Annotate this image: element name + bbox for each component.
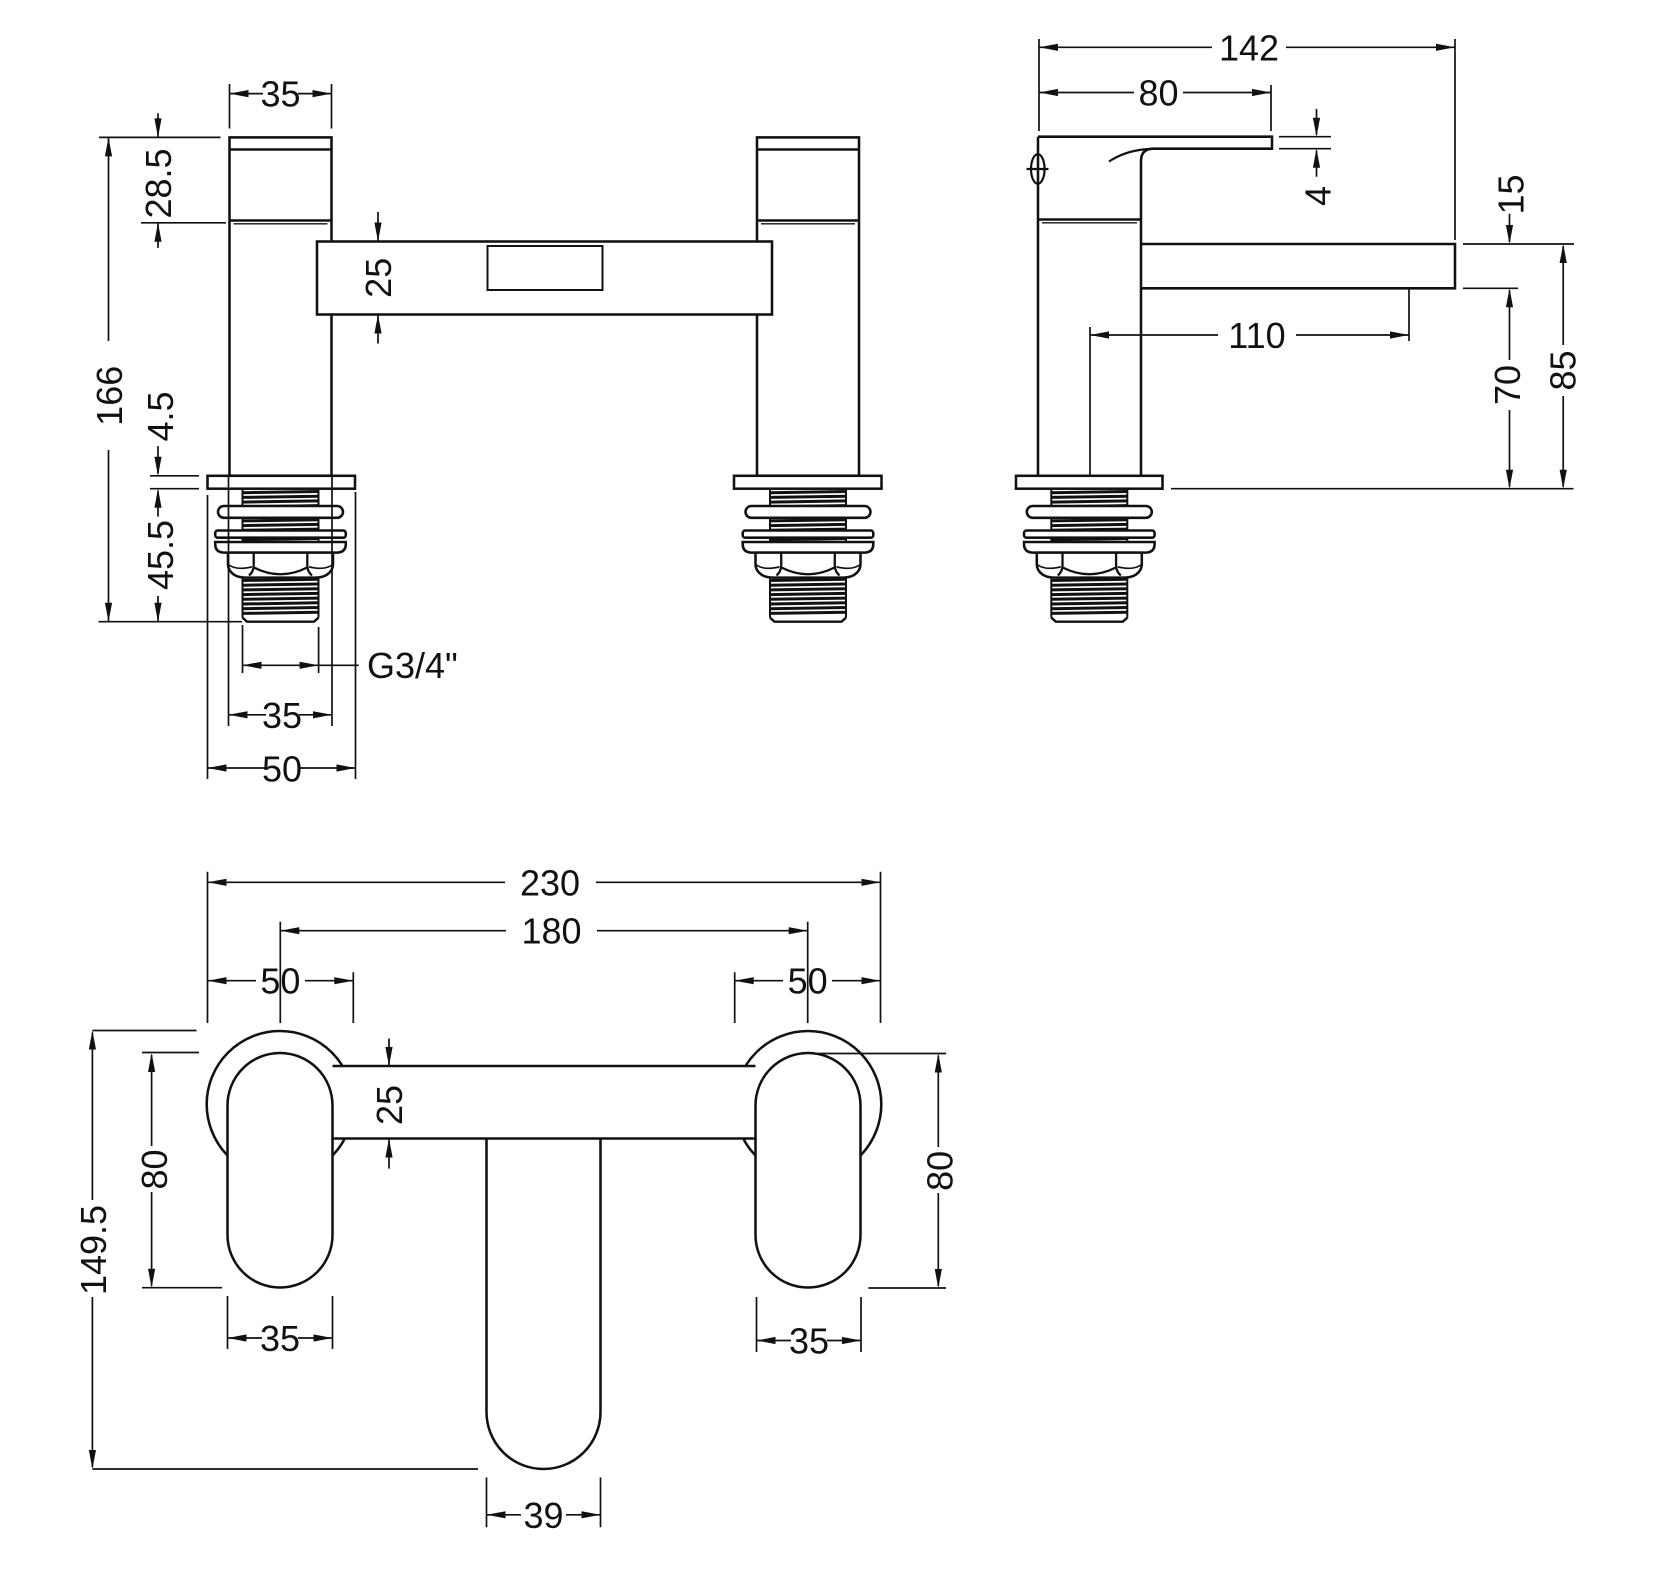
svg-text:180: 180 (521, 911, 581, 952)
svg-text:80: 80 (134, 1149, 175, 1189)
svg-text:35: 35 (260, 1318, 300, 1359)
svg-text:45.5: 45.5 (140, 520, 181, 590)
svg-text:35: 35 (789, 1321, 829, 1362)
svg-text:25: 25 (369, 1085, 410, 1125)
svg-text:15: 15 (1491, 174, 1532, 214)
svg-text:142: 142 (1219, 27, 1279, 68)
svg-text:149.5: 149.5 (73, 1205, 114, 1295)
svg-text:50: 50 (262, 749, 302, 790)
svg-text:4.5: 4.5 (140, 391, 181, 441)
svg-text:110: 110 (1228, 315, 1285, 356)
svg-text:39: 39 (523, 1495, 563, 1536)
svg-text:4: 4 (1298, 186, 1339, 206)
svg-text:80: 80 (1138, 73, 1178, 114)
svg-text:80: 80 (920, 1151, 961, 1191)
svg-text:70: 70 (1487, 365, 1528, 405)
svg-text:85: 85 (1543, 350, 1584, 390)
svg-text:230: 230 (520, 862, 580, 903)
svg-text:35: 35 (260, 74, 300, 115)
svg-text:50: 50 (260, 961, 300, 1002)
svg-text:35: 35 (262, 695, 302, 736)
svg-text:28.5: 28.5 (138, 148, 179, 218)
svg-text:50: 50 (788, 961, 828, 1002)
svg-text:25: 25 (358, 258, 399, 298)
svg-text:G3/4": G3/4" (367, 645, 458, 686)
svg-text:166: 166 (89, 366, 130, 426)
